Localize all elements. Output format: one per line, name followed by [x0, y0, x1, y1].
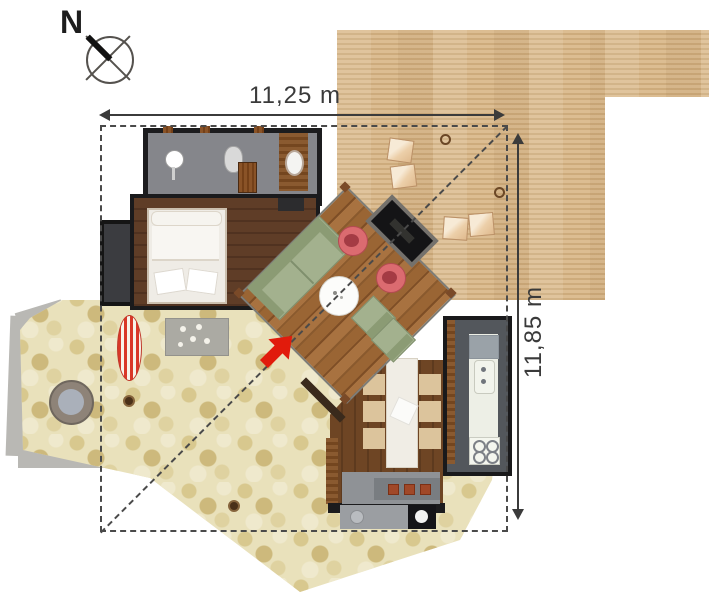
- dimension-line-vertical: [517, 141, 519, 513]
- width-dimension-label: 11,25 m: [220, 82, 370, 110]
- compass-north-label: N: [60, 4, 83, 41]
- arrowhead-up: [512, 133, 524, 144]
- deck-extension: [605, 30, 709, 97]
- arrowhead-left: [99, 109, 110, 121]
- arrowhead-down: [512, 509, 524, 520]
- height-dimension-label: 11,85 m: [520, 262, 548, 402]
- dimension-line-horizontal: [107, 114, 497, 116]
- floor-plan: 11,25 m 11,85 m N: [0, 0, 709, 613]
- hot-tub-inner: [58, 389, 84, 415]
- arrowhead-right: [494, 109, 505, 121]
